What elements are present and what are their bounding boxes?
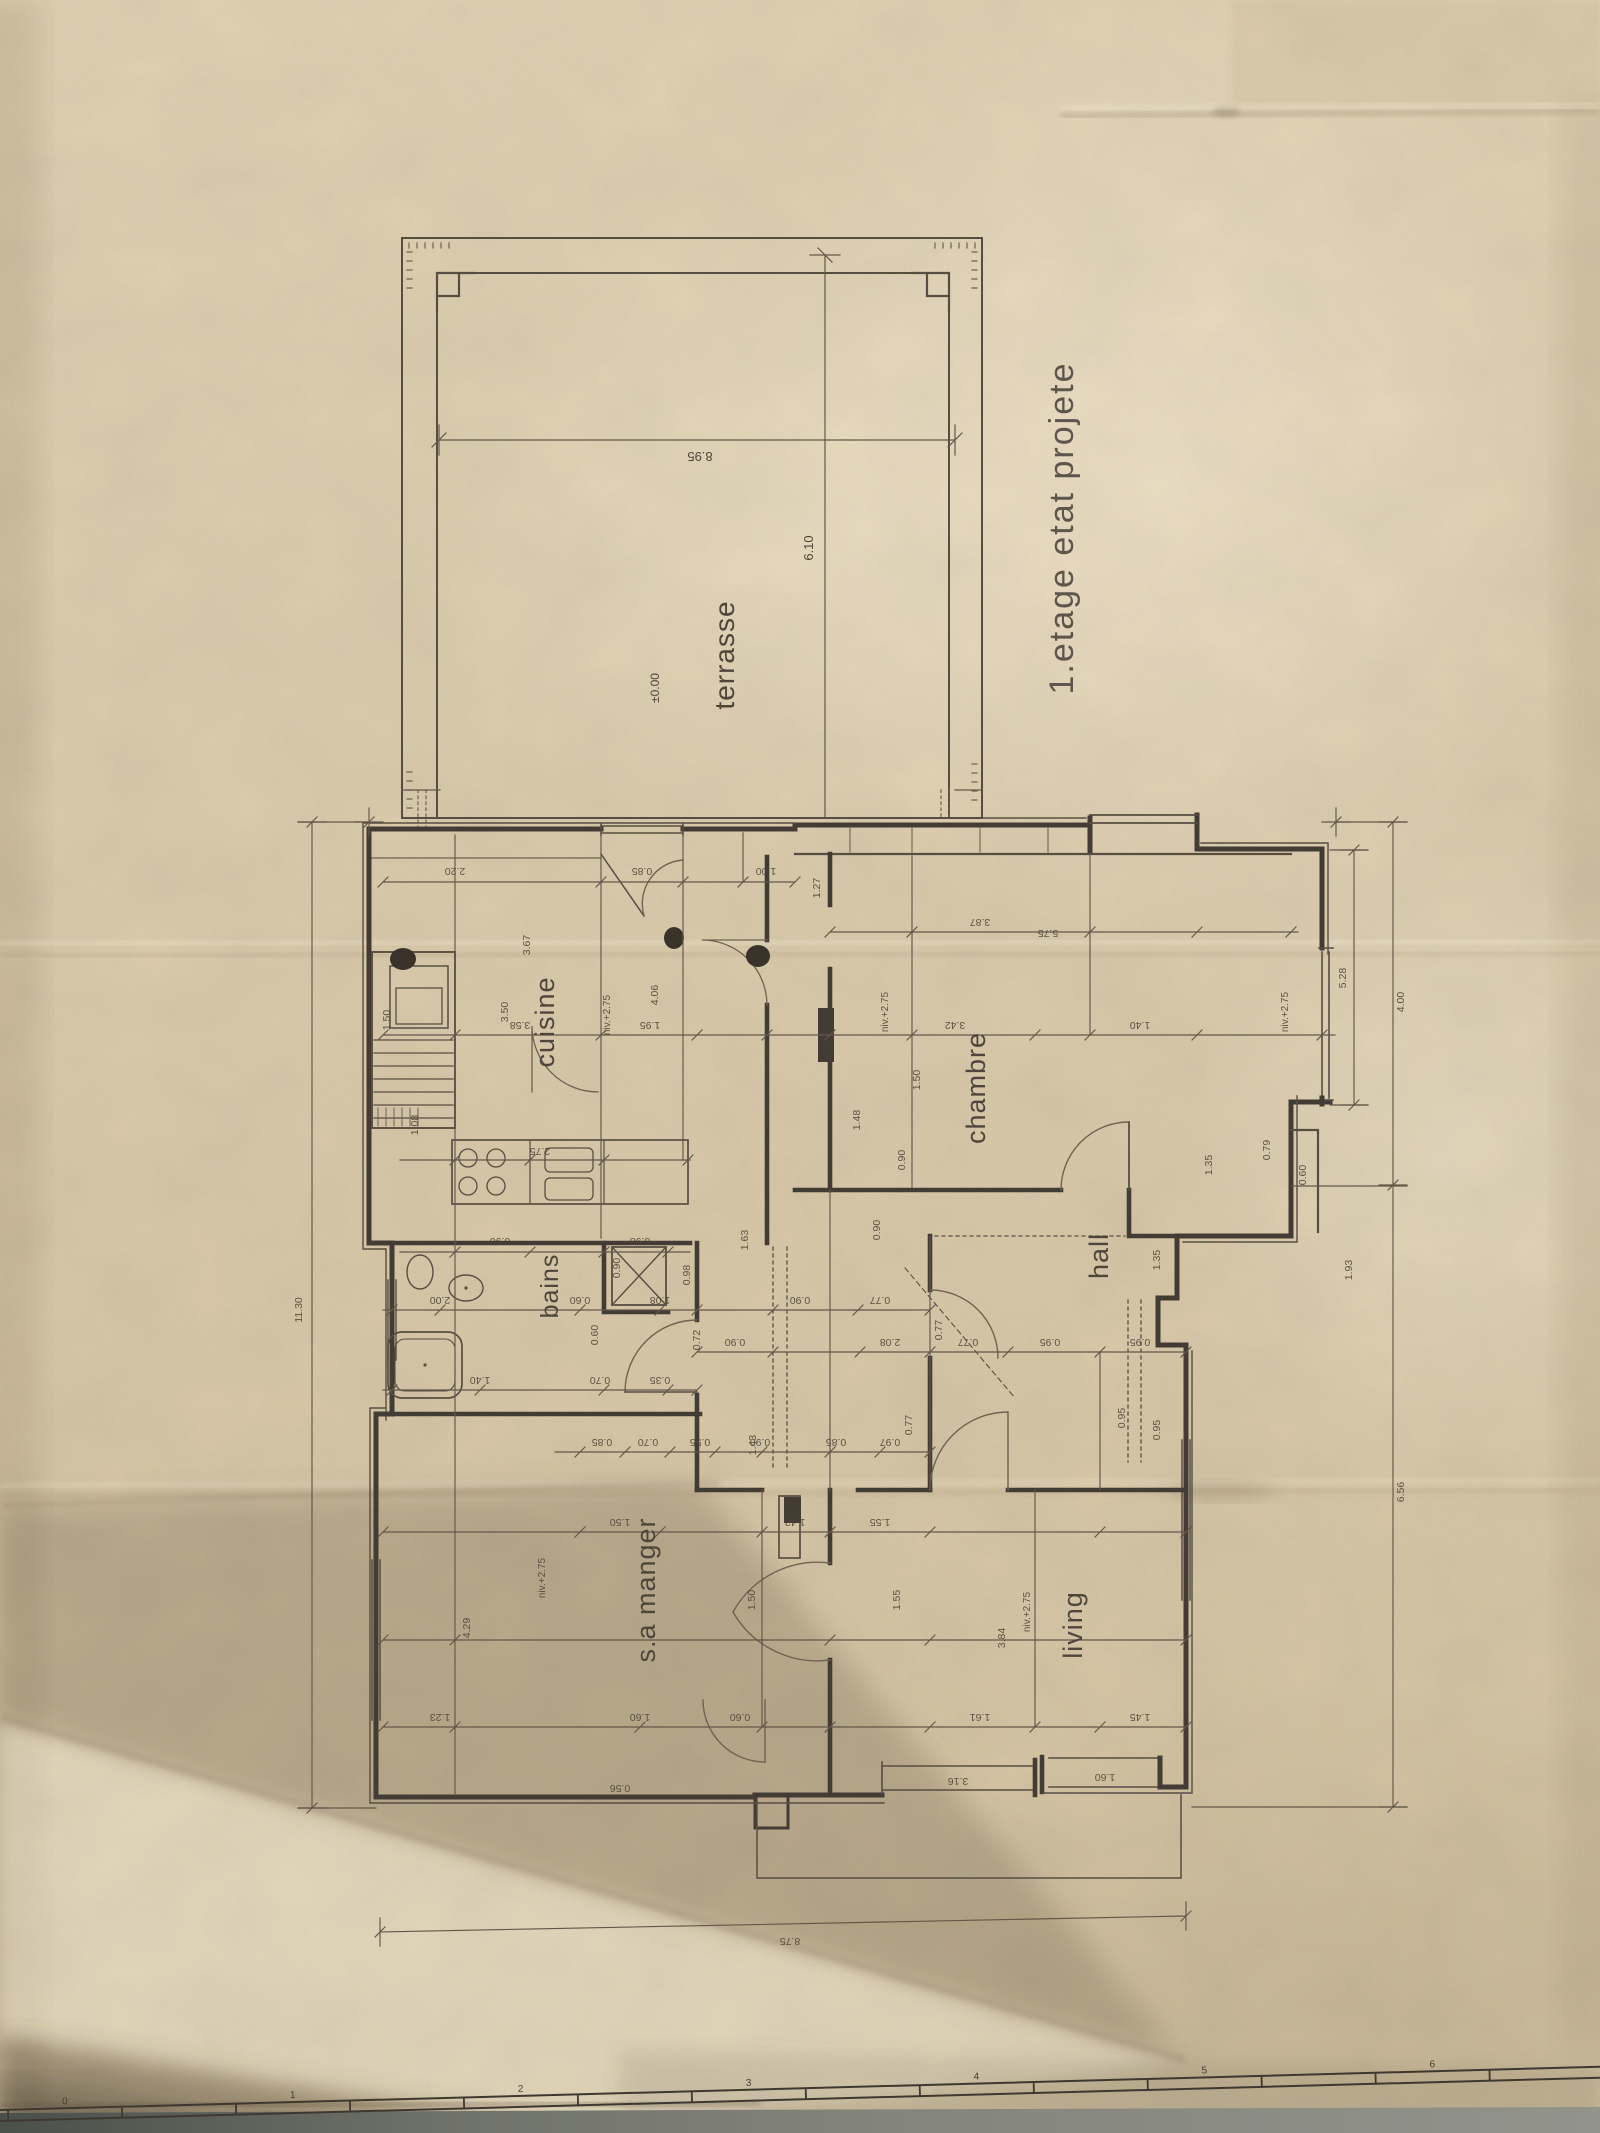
svg-text:1.63: 1.63: [739, 1230, 751, 1251]
svg-text:0.95: 0.95: [1130, 1336, 1151, 1348]
svg-text:hall: hall: [1084, 1233, 1114, 1279]
svg-text:0.85: 0.85: [632, 865, 653, 877]
svg-text:0.77: 0.77: [958, 1336, 979, 1348]
svg-text:0.85: 0.85: [592, 1436, 613, 1448]
svg-text:0.79: 0.79: [1261, 1140, 1273, 1161]
svg-text:0: 0: [62, 2096, 68, 2107]
svg-text:0.72: 0.72: [691, 1330, 703, 1351]
svg-text:0.60: 0.60: [730, 1711, 751, 1723]
svg-text:1.48: 1.48: [851, 1110, 863, 1131]
svg-text:1.61: 1.61: [970, 1711, 991, 1723]
svg-text:niv.+2.75: niv.+2.75: [880, 992, 891, 1033]
svg-text:1.27: 1.27: [811, 878, 823, 899]
svg-text:1.00: 1.00: [756, 865, 777, 877]
svg-text:0.35: 0.35: [650, 1374, 671, 1386]
svg-text:6.56: 6.56: [1395, 1482, 1407, 1503]
svg-text:0.56: 0.56: [610, 1782, 631, 1794]
svg-text:1.45: 1.45: [1130, 1711, 1151, 1723]
svg-text:1.35: 1.35: [1203, 1155, 1215, 1176]
svg-text:±0.00: ±0.00: [648, 673, 662, 703]
svg-text:3.84: 3.84: [996, 1628, 1008, 1649]
svg-text:3.87: 3.87: [970, 916, 991, 928]
svg-text:1.55: 1.55: [891, 1590, 903, 1611]
svg-text:1.35: 1.35: [1151, 1250, 1163, 1271]
svg-text:0.70: 0.70: [590, 1374, 611, 1386]
svg-text:1.95: 1.95: [640, 1019, 661, 1031]
svg-text:chambre: chambre: [961, 1032, 991, 1144]
svg-text:1.40: 1.40: [470, 1374, 491, 1386]
svg-text:0.95: 0.95: [1116, 1408, 1128, 1429]
svg-text:4.00: 4.00: [1395, 992, 1407, 1013]
svg-text:niv.+2.75: niv.+2.75: [537, 1558, 548, 1599]
svg-text:niv.+2.75: niv.+2.75: [602, 995, 613, 1036]
svg-text:2: 2: [518, 2084, 524, 2095]
svg-text:0.98: 0.98: [630, 1235, 651, 1247]
svg-text:s.a manger: s.a manger: [631, 1517, 661, 1662]
svg-text:1.43: 1.43: [785, 1516, 806, 1528]
svg-text:niv.+2.75: niv.+2.75: [1280, 992, 1291, 1033]
svg-text:0.90: 0.90: [725, 1336, 746, 1348]
svg-text:1.50: 1.50: [610, 1516, 631, 1528]
svg-text:3.42: 3.42: [945, 1019, 966, 1031]
svg-text:0.95: 0.95: [1040, 1336, 1061, 1348]
svg-text:3.58: 3.58: [510, 1019, 531, 1031]
svg-text:5: 5: [1201, 2065, 1207, 2076]
svg-text:1.40: 1.40: [1130, 1019, 1151, 1031]
svg-text:2.20: 2.20: [445, 865, 466, 877]
svg-text:cuisine: cuisine: [530, 976, 560, 1067]
svg-text:1.08: 1.08: [409, 1115, 421, 1136]
svg-text:terrasse: terrasse: [709, 600, 740, 709]
svg-text:4.06: 4.06: [649, 985, 661, 1006]
svg-text:bains: bains: [536, 1254, 564, 1319]
svg-text:2.00: 2.00: [430, 1294, 451, 1306]
svg-text:1.08: 1.08: [650, 1294, 671, 1306]
svg-text:0.60: 0.60: [589, 1325, 601, 1346]
svg-text:0.77: 0.77: [870, 1294, 891, 1306]
svg-text:0.60: 0.60: [570, 1294, 591, 1306]
svg-text:0.77: 0.77: [903, 1415, 915, 1436]
svg-text:1.43: 1.43: [747, 1435, 759, 1456]
svg-text:0.90: 0.90: [871, 1220, 883, 1241]
svg-text:living: living: [1058, 1591, 1088, 1659]
svg-text:0.90: 0.90: [611, 1258, 623, 1279]
svg-text:0.98: 0.98: [681, 1265, 693, 1286]
svg-text:1.etage etat projete: 1.etage etat projete: [1043, 361, 1081, 694]
svg-text:0.97: 0.97: [880, 1436, 901, 1448]
svg-text:1.50: 1.50: [746, 1590, 758, 1611]
svg-text:6: 6: [1429, 2059, 1435, 2070]
svg-text:1.55: 1.55: [870, 1516, 891, 1528]
svg-text:2.08: 2.08: [880, 1336, 901, 1348]
svg-text:11.30: 11.30: [293, 1297, 305, 1323]
svg-text:0.60: 0.60: [1297, 1165, 1309, 1186]
svg-text:0.85: 0.85: [826, 1436, 847, 1448]
svg-text:0.95: 0.95: [1151, 1420, 1163, 1441]
svg-text:3.16: 3.16: [948, 1775, 969, 1787]
svg-text:6.10: 6.10: [801, 535, 816, 560]
svg-text:1.93: 1.93: [1343, 1260, 1355, 1281]
svg-text:5.28: 5.28: [1337, 968, 1349, 989]
svg-text:3: 3: [746, 2078, 752, 2089]
svg-text:0.90: 0.90: [490, 1235, 511, 1247]
svg-text:1.60: 1.60: [630, 1711, 651, 1723]
svg-text:4: 4: [974, 2071, 980, 2082]
svg-text:1: 1: [290, 2090, 296, 2101]
svg-text:8.95: 8.95: [687, 449, 712, 464]
svg-text:2.75: 2.75: [530, 1145, 551, 1157]
svg-text:3.50: 3.50: [499, 1002, 511, 1023]
svg-text:0.90: 0.90: [790, 1294, 811, 1306]
svg-text:0.77: 0.77: [933, 1320, 945, 1341]
svg-text:0.70: 0.70: [638, 1436, 659, 1448]
svg-text:1.23: 1.23: [430, 1711, 451, 1723]
svg-text:5.75: 5.75: [1038, 927, 1059, 939]
svg-text:4.29: 4.29: [461, 1618, 473, 1639]
svg-text:1.50: 1.50: [911, 1070, 923, 1091]
svg-text:niv.+2.75: niv.+2.75: [1022, 1592, 1033, 1633]
svg-text:1.60: 1.60: [1095, 1771, 1116, 1783]
svg-text:1.50: 1.50: [381, 1010, 393, 1031]
svg-text:3.67: 3.67: [521, 935, 533, 956]
svg-text:8.75: 8.75: [780, 1935, 801, 1947]
svg-text:0.55: 0.55: [690, 1436, 711, 1448]
svg-text:0.90: 0.90: [896, 1150, 908, 1171]
